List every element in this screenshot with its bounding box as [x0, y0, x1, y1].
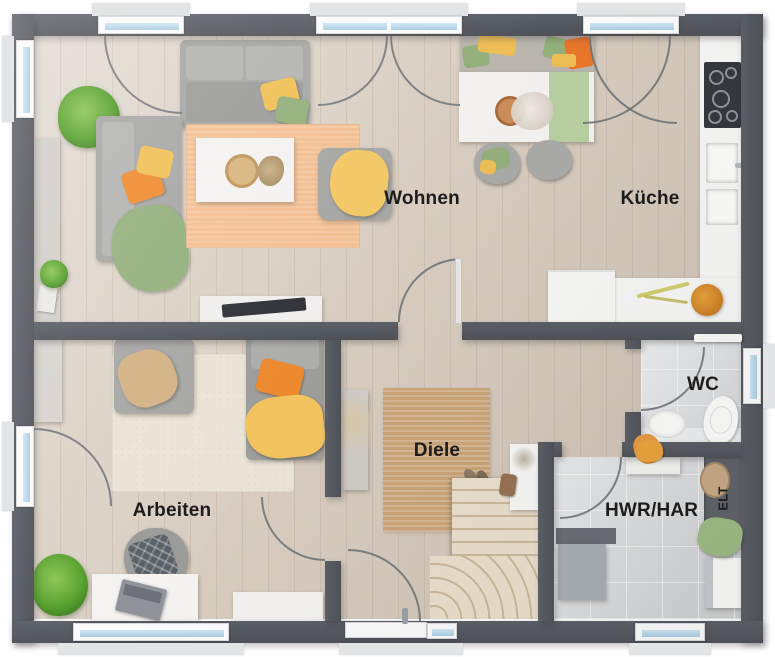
- window: [635, 623, 705, 641]
- kitchen-freezer: [548, 270, 615, 323]
- bag: [499, 473, 518, 497]
- pillow-yellow: [552, 54, 576, 67]
- window-sill: [58, 643, 244, 655]
- fruit-bowl: [691, 284, 723, 316]
- towel-rail: [694, 334, 742, 342]
- wall-arbeiten-diele-lower: [325, 561, 341, 621]
- appliance: [558, 544, 606, 600]
- coffee-table: [196, 138, 294, 202]
- window: [743, 348, 761, 404]
- sink: [706, 143, 738, 183]
- kitchen-door: [583, 16, 679, 34]
- plant-icon: [40, 260, 68, 288]
- room-label-arbeiten: Arbeiten: [122, 500, 222, 522]
- wardrobe: [34, 334, 62, 422]
- room-label-kueche: Küche: [605, 188, 695, 210]
- picture-frame: [36, 285, 57, 313]
- washbasin: [648, 410, 686, 438]
- wall-arbeiten-diele-upper: [325, 340, 341, 497]
- plant-icon: [32, 554, 88, 616]
- window-sill: [577, 3, 685, 16]
- wall-wc-left-upper: [625, 340, 641, 349]
- window-sill: [92, 3, 190, 16]
- window-sill: [2, 422, 14, 511]
- terrace-door: [98, 16, 184, 34]
- sink: [706, 189, 738, 225]
- room-label-hwr: HWR/HAR: [605, 500, 695, 522]
- room-label-wohnen: Wohnen: [372, 188, 472, 210]
- wall-diele-hwr: [538, 442, 554, 621]
- french-door: [316, 16, 462, 34]
- wall-middle-left: [34, 322, 398, 340]
- stairs-winder: [430, 556, 538, 619]
- door-sill: [339, 643, 463, 655]
- appliance-shelf: [556, 528, 616, 544]
- cooktop: [704, 62, 741, 128]
- door-handle-icon: [402, 608, 408, 624]
- window-sill: [763, 344, 775, 408]
- window-sill: [2, 36, 14, 122]
- window: [73, 623, 229, 641]
- terrace-door: [16, 426, 34, 507]
- floor-plan: Wohnen Küche Arbeiten Diele WC HWR/HAR E…: [0, 0, 775, 657]
- wall-right: [741, 14, 763, 643]
- dining-table: [459, 72, 594, 142]
- chair: [526, 140, 572, 180]
- sideboard: [233, 592, 323, 621]
- room-label-diele: Diele: [407, 440, 467, 462]
- pillow-green: [274, 95, 310, 126]
- washing-machine: [705, 558, 741, 608]
- room-label-elt: ELT: [716, 479, 731, 519]
- entrance-sidelight: [427, 623, 457, 639]
- entrance-door: [345, 622, 427, 638]
- window: [16, 40, 34, 118]
- door-leaf: [455, 258, 462, 324]
- wall-hwr-top-stub: [554, 442, 562, 457]
- window-sill: [310, 3, 468, 16]
- room-label-wc: WC: [685, 374, 721, 396]
- dried-flowers: [512, 446, 536, 472]
- napkin-yellow: [479, 159, 497, 176]
- window-sill: [629, 643, 711, 655]
